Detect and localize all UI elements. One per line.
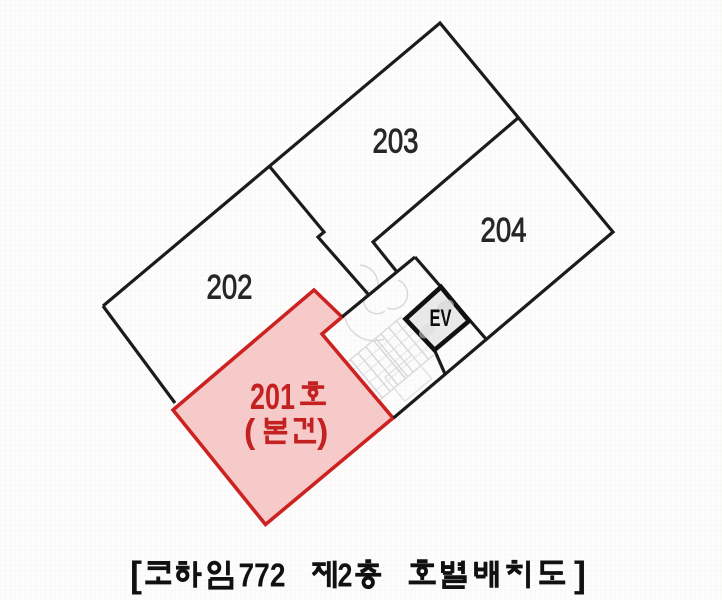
- svg-text:203: 203: [373, 123, 419, 161]
- svg-text:202: 202: [207, 269, 253, 307]
- svg-text:EV: EV: [430, 305, 452, 332]
- svg-text:201: 201: [250, 376, 295, 417]
- svg-text:): ): [317, 413, 328, 451]
- svg-text:(: (: [244, 413, 256, 451]
- svg-text:[: [: [130, 554, 142, 595]
- svg-text:]: ]: [574, 554, 586, 595]
- svg-text:772: 772: [239, 557, 286, 594]
- svg-text:204: 204: [481, 212, 527, 250]
- svg-text:2: 2: [338, 557, 353, 594]
